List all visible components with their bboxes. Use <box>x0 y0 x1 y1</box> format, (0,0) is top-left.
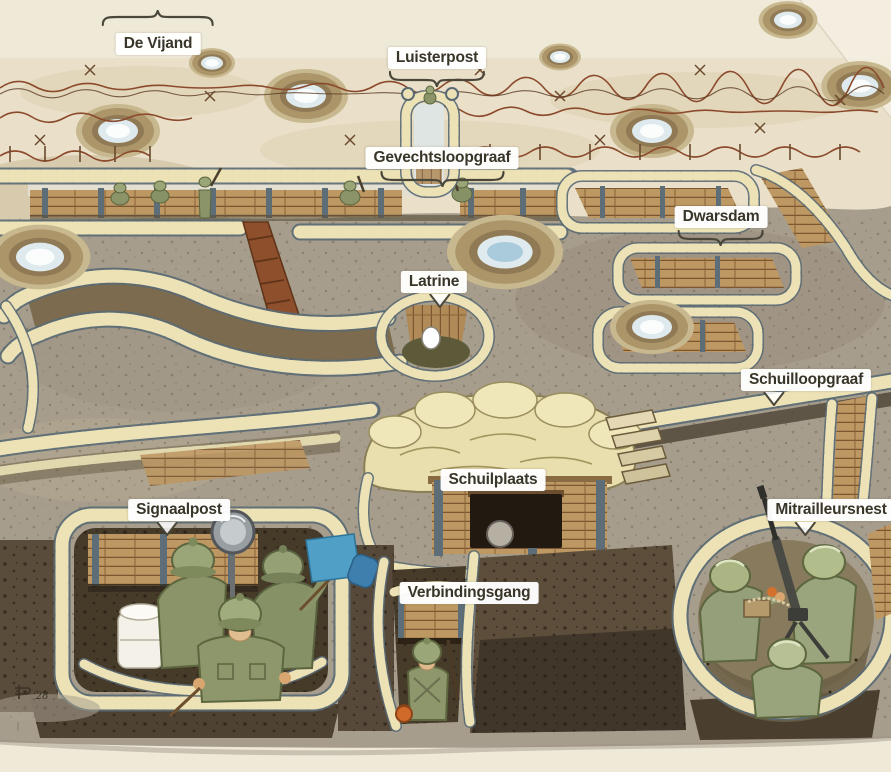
trench-diagram: De VijandLuisterpostGevechtsloopgraafDwa… <box>0 0 891 772</box>
label-text: Schuilloopgraaf <box>741 369 871 391</box>
label-gevechtsloopgraaf: Gevechtsloopgraaf <box>365 147 518 169</box>
label-text: Verbindingsgang <box>400 582 539 604</box>
label-de-vijand: De Vijand <box>116 33 201 55</box>
tail-down-pointer <box>427 294 453 314</box>
tail-down-pointer <box>761 392 787 412</box>
label-text: Dwarsdam <box>675 206 768 228</box>
brace-pointer-icon <box>389 70 485 87</box>
signature-year: '28 <box>33 691 48 702</box>
brace-pointer-icon <box>678 229 764 246</box>
artist-signature: '28 <box>12 682 48 702</box>
tail-down-pointer <box>792 522 818 542</box>
label-schuilplaats: Schuilplaats <box>441 469 546 491</box>
label-latrine: Latrine <box>401 271 467 293</box>
brace-pointer-icon <box>380 170 504 187</box>
labels-layer: De VijandLuisterpostGevechtsloopgraafDwa… <box>0 0 891 772</box>
label-text: Luisterpost <box>388 47 486 69</box>
label-text: Gevechtsloopgraaf <box>365 147 518 169</box>
tail-pointer-icon <box>427 294 453 309</box>
brace-down-pointer <box>389 70 485 92</box>
label-mitrailleursnest: Mitrailleursnest <box>767 499 891 521</box>
label-text: Schuilplaats <box>441 469 546 491</box>
label-text: Mitrailleursnest <box>767 499 891 521</box>
label-schuilloopgraaf: Schuilloopgraaf <box>741 369 871 391</box>
tail-pointer-icon <box>154 522 180 537</box>
label-text: De Vijand <box>116 33 201 55</box>
tail-pointer-icon <box>792 522 818 537</box>
label-verbindingsgang: Verbindingsgang <box>400 582 539 604</box>
tail-pointer-icon <box>761 392 787 407</box>
signature-monogram <box>12 682 32 702</box>
label-text: Latrine <box>401 271 467 293</box>
label-luisterpost: Luisterpost <box>388 47 486 69</box>
brace-down-pointer <box>678 229 764 251</box>
brace-down-pointer <box>380 170 504 192</box>
label-signaalpost: Signaalpost <box>128 499 230 521</box>
brace-pointer-icon <box>102 10 214 27</box>
label-dwarsdam: Dwarsdam <box>675 206 768 228</box>
label-text: Signaalpost <box>128 499 230 521</box>
brace-up-pointer <box>102 10 214 32</box>
tail-down-pointer <box>154 522 180 542</box>
